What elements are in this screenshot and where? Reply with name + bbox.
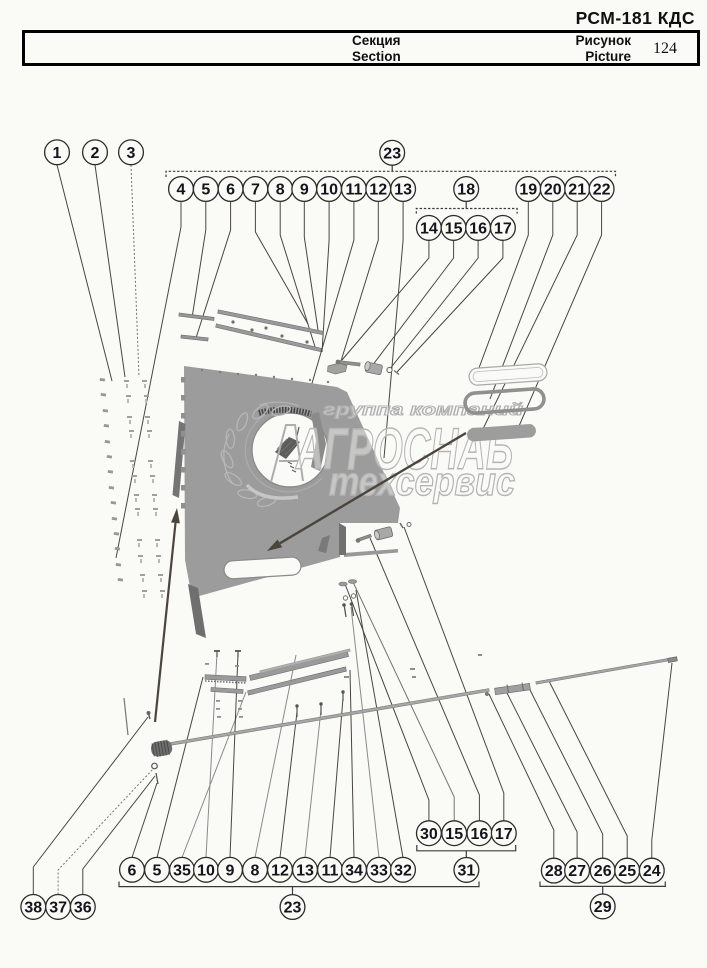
svg-text:Рисунок: Рисунок [576,33,632,48]
svg-text:16: 16 [469,221,487,238]
svg-text:124: 124 [653,40,677,57]
svg-text:РСМ-181 КДС: РСМ-181 КДС [576,8,695,28]
svg-text:12: 12 [369,182,387,199]
svg-text:10: 10 [320,182,338,199]
svg-text:12: 12 [271,862,289,879]
svg-text:25: 25 [618,863,636,880]
svg-text:23: 23 [383,145,401,162]
svg-text:10: 10 [197,862,215,879]
svg-text:36: 36 [74,900,92,917]
svg-text:37: 37 [49,900,67,917]
svg-text:Секция: Секция [352,33,401,48]
svg-text:15: 15 [445,826,463,843]
svg-text:32: 32 [394,862,412,879]
svg-text:28: 28 [545,863,563,880]
svg-text:1: 1 [53,145,62,162]
svg-text:11: 11 [322,862,339,879]
svg-text:24: 24 [643,863,661,880]
svg-text:33: 33 [370,862,388,879]
svg-text:4: 4 [177,182,186,199]
svg-text:15: 15 [445,221,463,238]
svg-text:27: 27 [568,863,586,880]
svg-text:14: 14 [420,221,438,238]
svg-text:Picture: Picture [585,49,631,64]
svg-text:7: 7 [251,182,260,199]
svg-text:5: 5 [201,182,210,199]
svg-text:22: 22 [593,182,611,199]
svg-text:5: 5 [153,862,162,879]
svg-text:20: 20 [544,182,562,199]
svg-text:6: 6 [226,182,235,199]
svg-text:6: 6 [128,862,137,879]
svg-text:13: 13 [296,862,314,879]
svg-text:9: 9 [300,182,309,199]
svg-text:23: 23 [284,900,302,917]
svg-text:35: 35 [173,862,191,879]
svg-text:19: 19 [519,182,537,199]
svg-text:38: 38 [24,900,42,917]
svg-text:8: 8 [276,182,285,199]
svg-text:13: 13 [394,182,412,199]
svg-text:18: 18 [457,182,475,199]
svg-text:3: 3 [127,145,136,162]
svg-text:Section: Section [352,49,401,64]
svg-text:21: 21 [568,182,586,199]
svg-text:26: 26 [594,863,612,880]
svg-text:17: 17 [495,826,513,843]
svg-text:16: 16 [471,826,489,843]
svg-text:29: 29 [594,899,612,916]
svg-text:34: 34 [345,862,363,879]
svg-text:9: 9 [226,862,235,879]
svg-text:17: 17 [494,221,512,238]
svg-text:31: 31 [458,863,476,880]
svg-text:30: 30 [420,826,438,843]
svg-text:2: 2 [91,145,100,162]
svg-text:8: 8 [251,862,260,879]
svg-text:11: 11 [345,182,362,199]
